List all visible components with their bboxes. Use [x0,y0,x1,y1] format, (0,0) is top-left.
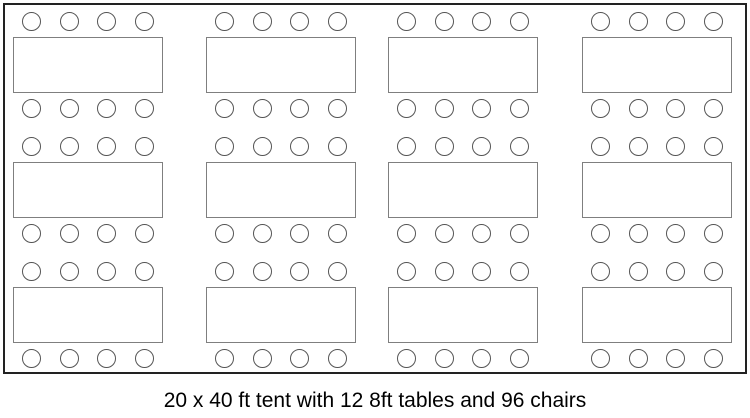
chair [591,262,610,281]
chair [704,262,723,281]
chair [135,349,154,368]
chair [435,99,454,118]
table-8ft [13,37,163,93]
chair [215,349,234,368]
table-8ft [582,162,732,218]
chair [97,224,116,243]
chair [629,349,648,368]
chair [666,262,685,281]
chair [135,12,154,31]
chair [135,262,154,281]
chair-row-bottom [13,224,163,243]
chair-row-bottom [582,224,732,243]
chair [328,349,347,368]
table-8ft [582,287,732,343]
chair-row-top [388,262,538,281]
chair [290,262,309,281]
table-8ft [582,37,732,93]
chair [253,99,272,118]
chair [472,262,491,281]
chair [135,99,154,118]
chair-row-top [206,137,356,156]
chair [472,349,491,368]
chair [472,224,491,243]
chair-row-bottom [206,349,356,368]
chair [510,262,529,281]
chair-row-top [582,137,732,156]
diagram-caption: 20 x 40 ft tent with 12 8ft tables and 9… [0,384,750,418]
chair [215,99,234,118]
chair [510,349,529,368]
chair-row-top [206,12,356,31]
table-group [13,12,163,118]
chair [215,137,234,156]
chair-row-bottom [388,224,538,243]
chair [435,12,454,31]
chair [629,262,648,281]
chair [215,262,234,281]
chair [591,349,610,368]
chair [510,224,529,243]
chair [60,12,79,31]
chair [629,99,648,118]
chair [666,137,685,156]
chair [97,349,116,368]
table-group [13,137,163,243]
chair [215,224,234,243]
chair [290,349,309,368]
chair [253,349,272,368]
table-8ft [13,287,163,343]
chair-row-top [13,137,163,156]
chair [22,99,41,118]
chair [97,99,116,118]
chair [435,137,454,156]
chair [704,349,723,368]
chair [510,137,529,156]
chair [215,12,234,31]
table-8ft [206,37,356,93]
chair [591,137,610,156]
table-group [388,262,538,368]
chair [290,12,309,31]
chair [22,12,41,31]
chair [97,137,116,156]
table-8ft [13,162,163,218]
chair [666,224,685,243]
chair [328,224,347,243]
table-group [13,262,163,368]
chair [704,12,723,31]
chair [704,99,723,118]
chair-row-bottom [582,99,732,118]
chair [290,99,309,118]
chair [328,262,347,281]
chair [435,349,454,368]
tent-layout-diagram: 20 x 40 ft tent with 12 8ft tables and 9… [0,0,750,418]
table-group [388,12,538,118]
table-group [206,12,356,118]
chair [397,262,416,281]
chair [22,224,41,243]
chair [629,137,648,156]
chair-row-top [582,262,732,281]
chair [60,262,79,281]
chair-row-top [13,12,163,31]
chair [22,137,41,156]
chair [591,99,610,118]
table-group [206,262,356,368]
chair [435,224,454,243]
chair [591,224,610,243]
table-group [582,137,732,243]
table-8ft [388,162,538,218]
chair-row-top [388,12,538,31]
table-8ft [388,37,538,93]
chair [97,262,116,281]
chair [629,12,648,31]
chair [60,137,79,156]
chair-row-bottom [206,99,356,118]
table-group [388,137,538,243]
chair [290,224,309,243]
chair [510,99,529,118]
chair-row-top [206,262,356,281]
table-group [582,262,732,368]
table-8ft [206,287,356,343]
chair [666,349,685,368]
chair-row-top [13,262,163,281]
chair [60,224,79,243]
chair-row-bottom [388,99,538,118]
chair [397,349,416,368]
chair [510,12,529,31]
chair [135,137,154,156]
chair-row-bottom [206,224,356,243]
chair [253,137,272,156]
chair [97,12,116,31]
chair [22,349,41,368]
chair [60,99,79,118]
chair-row-top [388,137,538,156]
chair [666,99,685,118]
chair [397,137,416,156]
chair [629,224,648,243]
table-group [582,12,732,118]
table-8ft [206,162,356,218]
chair-row-bottom [582,349,732,368]
chair [253,224,272,243]
chair [397,99,416,118]
chair [704,137,723,156]
chair-row-bottom [13,349,163,368]
table-8ft [388,287,538,343]
chair [472,99,491,118]
chair [253,12,272,31]
chair [22,262,41,281]
chair [704,224,723,243]
chair [435,262,454,281]
chair-row-top [582,12,732,31]
chair [397,12,416,31]
chair [253,262,272,281]
chair [397,224,416,243]
chair [472,12,491,31]
chair [666,12,685,31]
chair [472,137,491,156]
chair [328,99,347,118]
chair-row-bottom [388,349,538,368]
table-group [206,137,356,243]
chair [591,12,610,31]
chair [328,137,347,156]
chair [290,137,309,156]
chair [328,12,347,31]
chair-row-bottom [13,99,163,118]
chair [135,224,154,243]
chair [60,349,79,368]
